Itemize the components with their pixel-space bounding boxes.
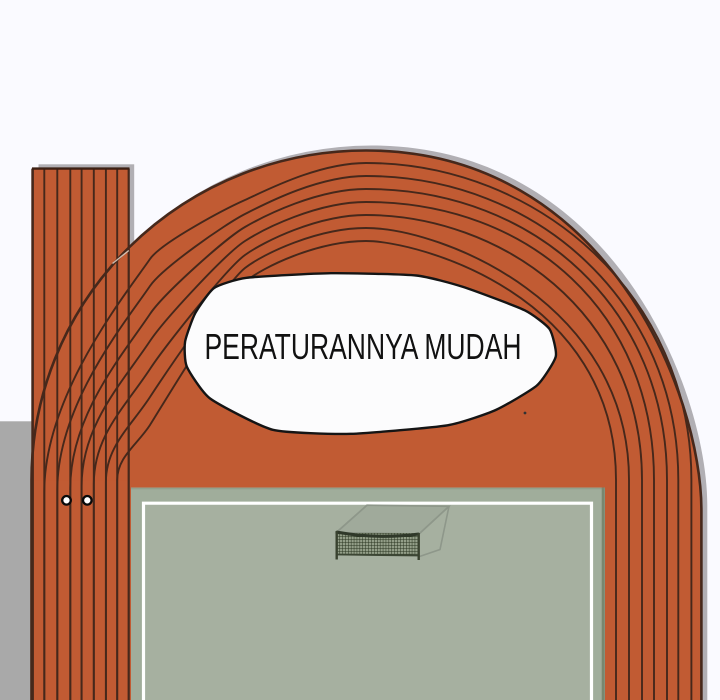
- svg-text:PERATURANNYA MUDAH: PERATURANNYA MUDAH: [205, 326, 522, 367]
